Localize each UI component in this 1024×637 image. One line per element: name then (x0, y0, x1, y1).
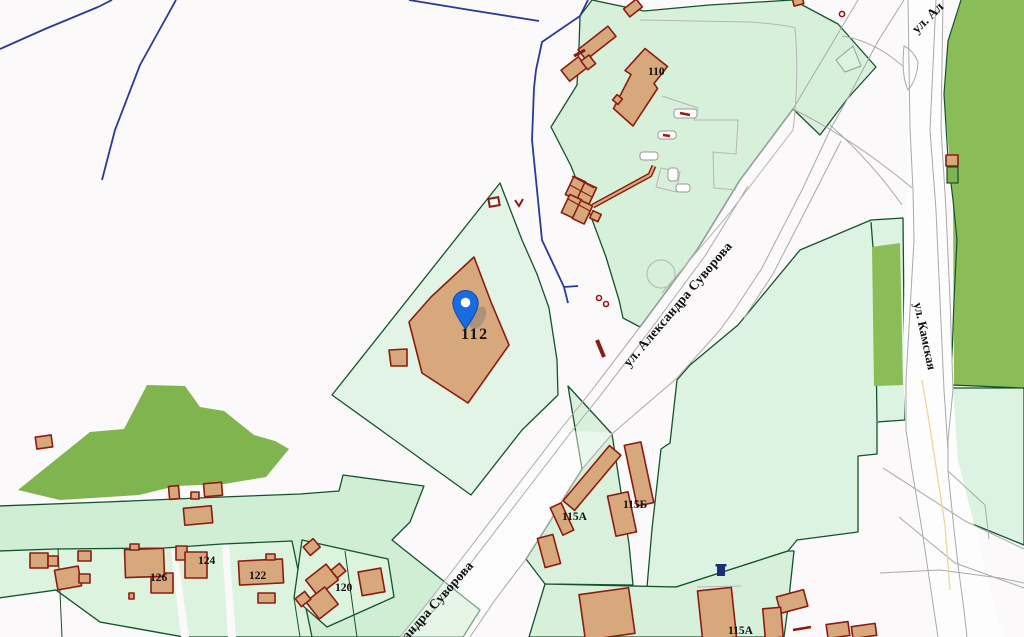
svg-text:126: 126 (150, 572, 168, 584)
svg-text:120: 120 (335, 582, 353, 594)
svg-text:112: 112 (461, 326, 489, 343)
svg-text:122: 122 (249, 570, 267, 582)
svg-text:110: 110 (648, 66, 665, 78)
svg-text:115Б: 115Б (623, 499, 648, 511)
svg-text:124: 124 (198, 555, 216, 567)
svg-text:115А: 115А (562, 511, 588, 523)
svg-text:115А: 115А (728, 625, 754, 637)
